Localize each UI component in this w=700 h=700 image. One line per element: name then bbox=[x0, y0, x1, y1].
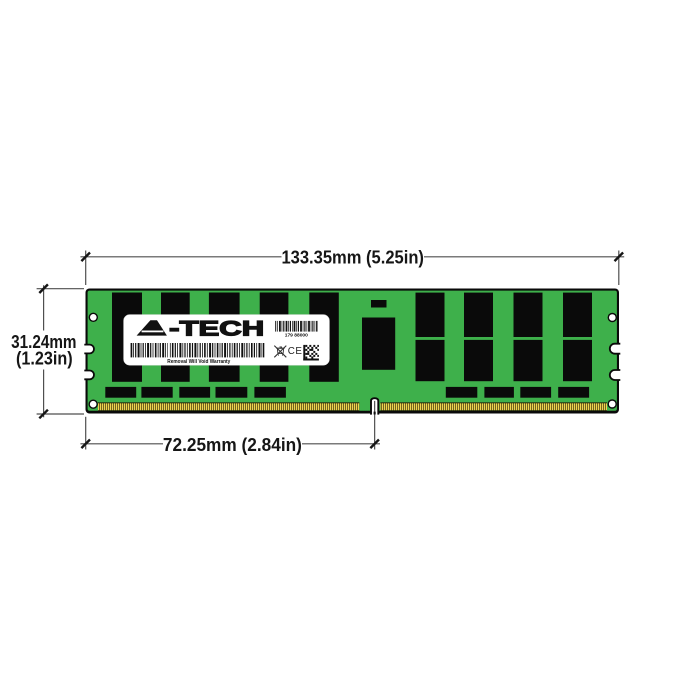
svg-text:72.25mm (2.84in): 72.25mm (2.84in) bbox=[163, 434, 302, 455]
svg-text:179 88000: 179 88000 bbox=[285, 333, 308, 339]
svg-text:-TECH: -TECH bbox=[169, 318, 264, 341]
svg-text:CE: CE bbox=[288, 346, 303, 357]
svg-text:(1.23in): (1.23in) bbox=[16, 347, 73, 368]
svg-text:133.35mm (5.25in): 133.35mm (5.25in) bbox=[281, 247, 424, 268]
svg-text:Removal Will Void Warranty: Removal Will Void Warranty bbox=[167, 359, 231, 365]
